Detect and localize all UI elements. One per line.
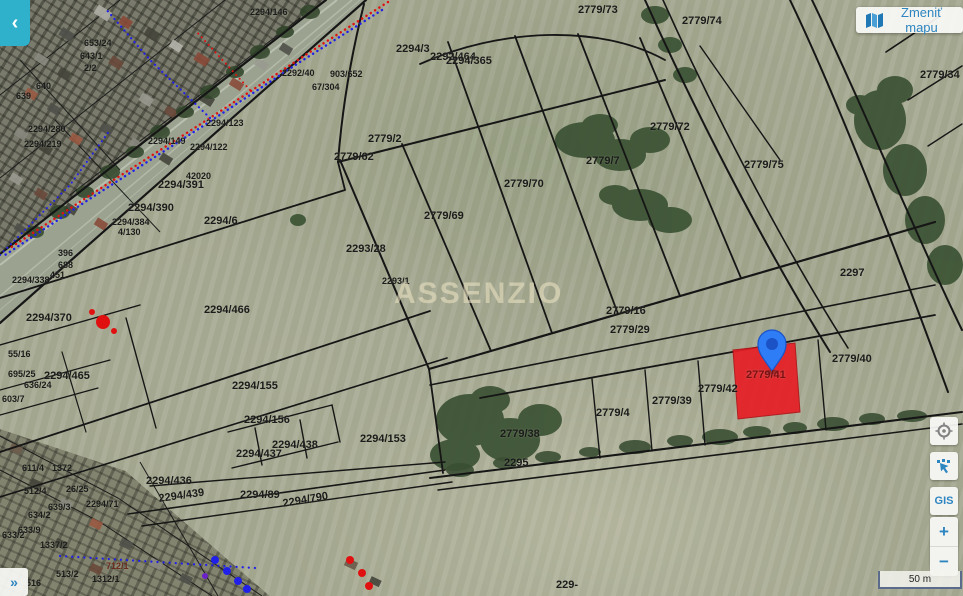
zoom-in-button[interactable]: + xyxy=(930,517,958,546)
gis-button[interactable]: GIS xyxy=(930,487,958,515)
select-cursor-icon xyxy=(935,457,953,475)
select-features-button[interactable] xyxy=(930,452,958,480)
chevron-double-right-icon: » xyxy=(10,574,18,590)
collapse-panel-button[interactable]: ‹ xyxy=(0,0,30,46)
scale-bar-label: 50 m xyxy=(909,574,931,585)
scale-bar: 50 m xyxy=(878,571,962,589)
map-viewer: 2779/732779/742779/342292/4642294/32294/… xyxy=(0,0,963,596)
locate-button[interactable] xyxy=(930,417,958,445)
gis-label: GIS xyxy=(935,495,954,507)
map-icon xyxy=(866,13,883,28)
change-map-label: Zmeniť mapu xyxy=(890,5,953,35)
change-map-button[interactable]: Zmeniť mapu xyxy=(856,7,963,33)
watermark: ASSENZIO xyxy=(394,277,563,311)
zoom-controls: + − xyxy=(930,517,958,576)
chevron-left-icon: ‹ xyxy=(12,12,19,35)
expand-panel-button[interactable]: » xyxy=(0,568,28,596)
locate-target-icon xyxy=(935,422,953,440)
parcel-boundaries xyxy=(0,0,962,526)
tree-clusters xyxy=(290,6,963,471)
